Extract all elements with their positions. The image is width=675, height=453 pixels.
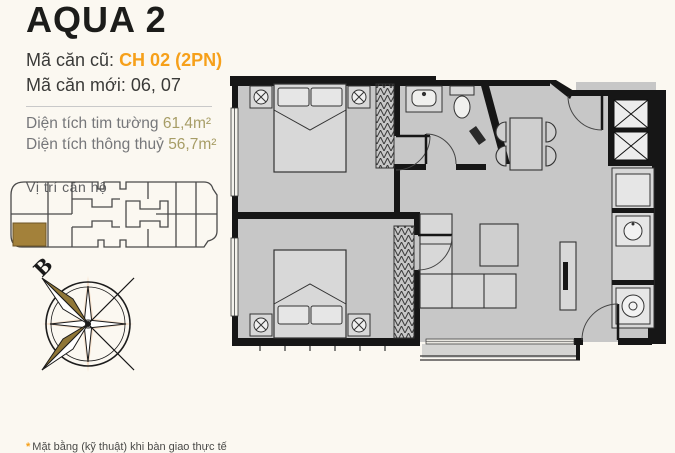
highlighted-unit bbox=[13, 223, 46, 246]
area-clear-label: Diện tích thông thuỷ bbox=[26, 136, 164, 153]
area-clear-value: 56,7m² bbox=[168, 136, 216, 153]
kitchen bbox=[608, 94, 654, 328]
old-code-label: Mã căn cũ: bbox=[26, 50, 114, 70]
new-code-label: Mã căn mới: bbox=[26, 75, 126, 95]
wardrobe-1 bbox=[376, 84, 394, 168]
area-info: Diện tích tim tường 61,4m² Diện tích thô… bbox=[26, 113, 226, 155]
area-row-wall: Diện tích tim tường 61,4m² bbox=[26, 113, 226, 134]
divider-line bbox=[26, 106, 212, 107]
building-plate-diagram bbox=[8, 179, 220, 251]
page-title: AQUA 2 bbox=[26, 0, 226, 40]
footnote-text: Mặt bằng (kỹ thuật) khi bàn giao thực tế bbox=[32, 441, 226, 453]
new-code-line: Mã căn mới: 06, 07 bbox=[26, 73, 226, 98]
compass-center-dot bbox=[85, 321, 91, 327]
info-panel: AQUA 2 Mã căn cũ: CH 02 (2PN) Mã căn mới… bbox=[26, 0, 226, 195]
floorplan-brochure-page: { "colors": { "background": "#fbf8f1", "… bbox=[0, 0, 675, 450]
unit-codes: Mã căn cũ: CH 02 (2PN) Mã căn mới: 06, 0… bbox=[26, 48, 226, 98]
footnote-marker: * bbox=[26, 441, 30, 453]
area-wall-label: Diện tích tim tường bbox=[26, 115, 159, 132]
floor-plan bbox=[230, 74, 670, 366]
footnote: *Mặt bằng (kỹ thuật) khi bàn giao thực t… bbox=[26, 441, 446, 453]
compass-north-label: B bbox=[29, 258, 58, 282]
compass-rose: B bbox=[24, 258, 152, 386]
tv bbox=[563, 262, 568, 290]
louver-ticks bbox=[260, 346, 385, 351]
fridge bbox=[616, 174, 650, 206]
area-wall-value: 61,4m² bbox=[163, 115, 211, 132]
old-code-value: CH 02 (2PN) bbox=[119, 50, 222, 70]
new-code-value: 06, 07 bbox=[131, 75, 181, 95]
area-row-clear: Diện tích thông thuỷ 56,7m² bbox=[26, 134, 226, 155]
wardrobe-2 bbox=[394, 226, 414, 338]
old-code-line: Mã căn cũ: CH 02 (2PN) bbox=[26, 48, 226, 73]
coffee-table bbox=[480, 224, 518, 266]
